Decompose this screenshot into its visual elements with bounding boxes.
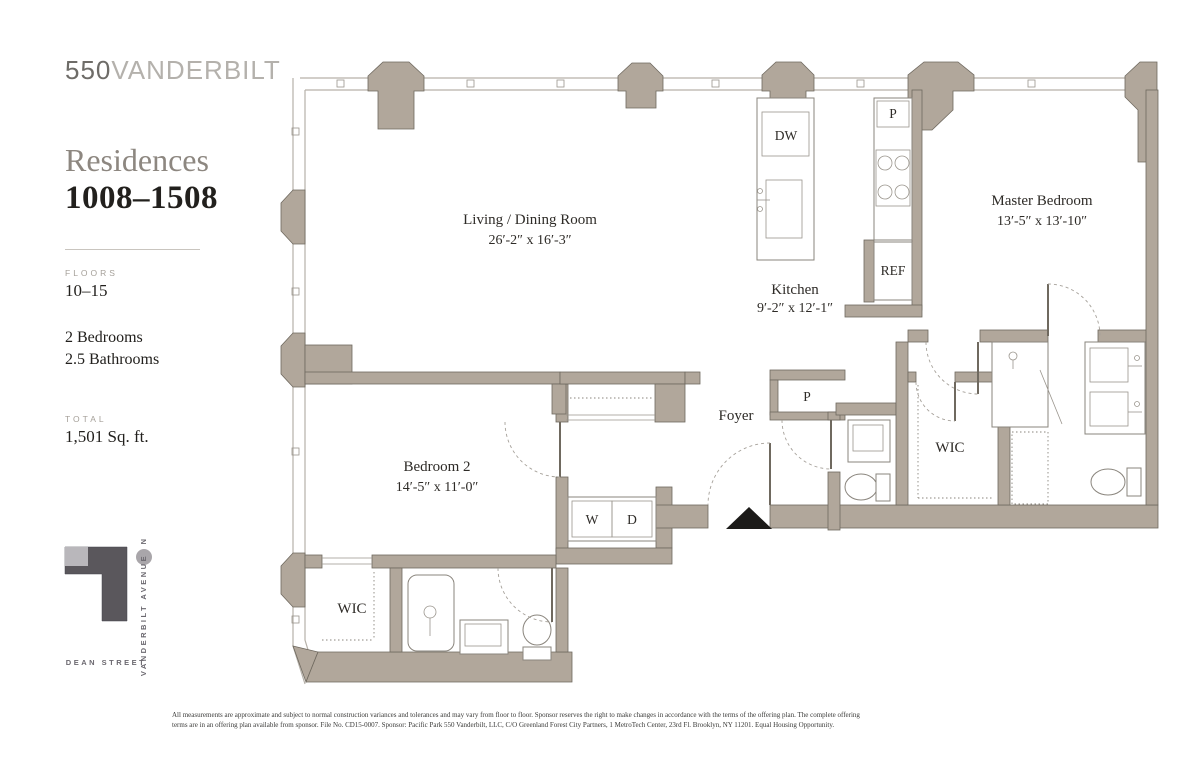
master-shower bbox=[992, 342, 1048, 427]
bathtub bbox=[408, 575, 454, 651]
bedroom2-wic-label: WIC bbox=[337, 601, 366, 617]
foyer-label: Foyer bbox=[719, 408, 754, 424]
master-bedroom-label: Master Bedroom bbox=[991, 193, 1093, 209]
powder-sink bbox=[848, 420, 890, 462]
disclaimer-line2: terms are in an offering plan available … bbox=[172, 720, 872, 730]
pantry-label: P bbox=[889, 106, 897, 121]
refrigerator-label: REF bbox=[881, 263, 906, 278]
dishwasher-label: DW bbox=[775, 128, 798, 143]
legal-disclaimer: All measurements are approximate and sub… bbox=[172, 710, 872, 730]
disclaimer-line1: All measurements are approximate and sub… bbox=[172, 710, 872, 720]
kitchen-island bbox=[757, 98, 814, 260]
bath2-toilet bbox=[523, 615, 551, 645]
master-toilet bbox=[1091, 469, 1125, 495]
master-bedroom-dims: 13′-5″ x 13′-10″ bbox=[997, 214, 1087, 229]
linen-closet bbox=[1012, 432, 1048, 504]
room-labels: Living / Dining Room 26′-2″ x 16′-3″ Kit… bbox=[337, 106, 1093, 617]
bedroom2-label: Bedroom 2 bbox=[403, 459, 470, 475]
powder-toilet bbox=[845, 474, 877, 500]
dryer-label: D bbox=[627, 512, 637, 527]
bedroom2-dims: 14′-5″ x 11′-0″ bbox=[396, 480, 479, 495]
kitchen-dims: 9′-2″ x 12′-1″ bbox=[757, 301, 833, 316]
foyer-closet-label: P bbox=[803, 389, 811, 404]
washer-label: W bbox=[586, 512, 599, 527]
living-room-dims: 26′-2″ x 16′-3″ bbox=[488, 233, 571, 248]
master-wic-label: WIC bbox=[935, 440, 964, 456]
floor-plan: Living / Dining Room 26′-2″ x 16′-3″ Kit… bbox=[0, 0, 1200, 776]
entry-marker bbox=[726, 507, 772, 529]
living-room-label: Living / Dining Room bbox=[463, 212, 597, 228]
kitchen-label: Kitchen bbox=[771, 282, 819, 298]
